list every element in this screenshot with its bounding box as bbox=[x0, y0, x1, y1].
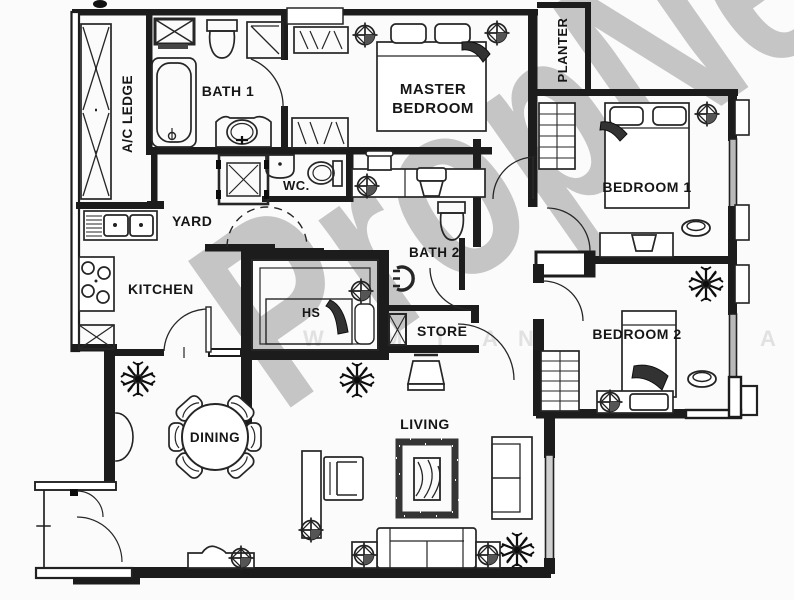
svg-text:PLANTER: PLANTER bbox=[555, 17, 570, 82]
svg-text:MASTER: MASTER bbox=[400, 81, 466, 98]
svg-text:HS: HS bbox=[302, 306, 320, 320]
svg-text:KITCHEN: KITCHEN bbox=[128, 281, 194, 297]
svg-text:BEDROOM: BEDROOM bbox=[392, 100, 474, 117]
svg-text:BEDROOM 2: BEDROOM 2 bbox=[592, 326, 681, 342]
svg-text:A/C LEDGE: A/C LEDGE bbox=[120, 75, 135, 153]
svg-text:YARD: YARD bbox=[172, 213, 212, 229]
svg-text:BATH 2: BATH 2 bbox=[409, 245, 460, 260]
svg-text:BEDROOM 1: BEDROOM 1 bbox=[602, 179, 691, 195]
svg-text:BATH 1: BATH 1 bbox=[202, 83, 255, 99]
svg-text:W: W bbox=[303, 326, 324, 351]
svg-text:STORE: STORE bbox=[417, 323, 467, 339]
svg-text:WC.: WC. bbox=[283, 178, 310, 193]
svg-text:DINING: DINING bbox=[190, 430, 240, 445]
svg-text:N: N bbox=[518, 326, 534, 351]
svg-text:A: A bbox=[760, 326, 776, 351]
svg-text:LIVING: LIVING bbox=[400, 416, 450, 432]
